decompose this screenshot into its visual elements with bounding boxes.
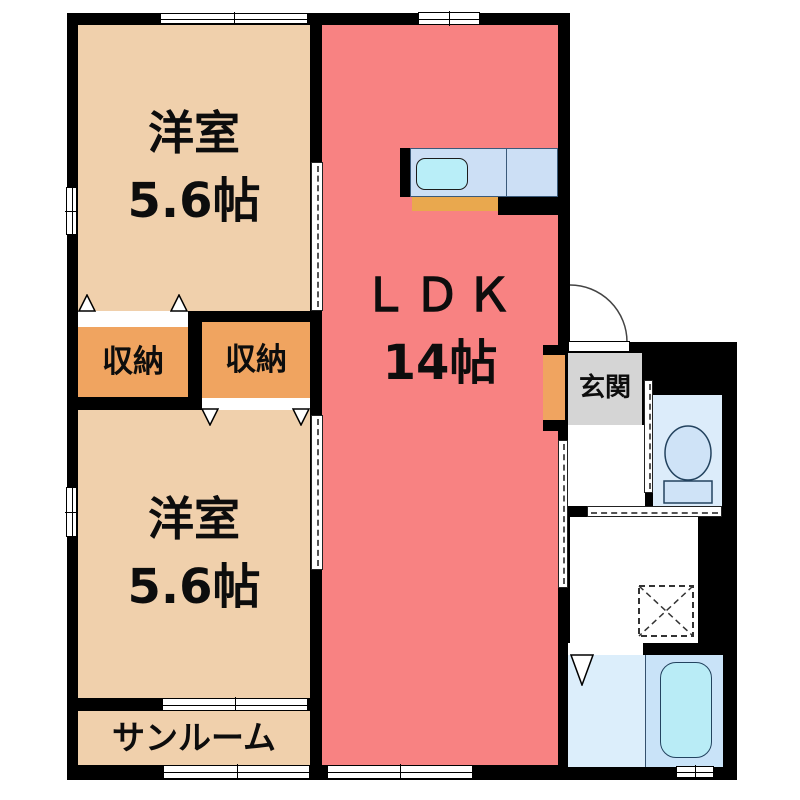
window-left-room1 bbox=[66, 187, 77, 235]
window-top-ldk bbox=[418, 12, 480, 25]
entrance-text: 玄関 bbox=[579, 370, 631, 408]
ldk-name: ＬＤＫ bbox=[362, 262, 518, 329]
entrance-label: 玄関 bbox=[568, 353, 642, 425]
room-top-label: 洋室 5.6帖 bbox=[78, 25, 310, 311]
ldk-size: 14帖 bbox=[383, 329, 498, 399]
closet-left-text: 収納 bbox=[102, 340, 164, 385]
window-top-room1 bbox=[160, 13, 308, 24]
door-washroom bbox=[587, 506, 722, 517]
ldk-label: ＬＤＫ 14帖 bbox=[322, 258, 558, 403]
door-wedge-icon bbox=[570, 654, 594, 686]
window-bottom-sunroom bbox=[163, 765, 310, 779]
closet-right-text: 収納 bbox=[225, 338, 287, 383]
door-room2-ldk bbox=[311, 415, 323, 570]
closet-left-door bbox=[78, 311, 188, 327]
shoebox-wall-bottom bbox=[543, 420, 570, 431]
kitchen-wall-stub bbox=[400, 148, 410, 197]
kitchen-counter bbox=[410, 148, 558, 197]
sunroom-text: サンルーム bbox=[112, 714, 276, 762]
floor-plan: 洋室 5.6帖 洋室 5.6帖 ＬＤＫ 14帖 収納 収納 サンルーム 玄関 bbox=[0, 0, 800, 800]
entrance-door-leaf bbox=[568, 341, 630, 352]
closet-left-label: 収納 bbox=[78, 327, 188, 397]
bathtub-icon bbox=[660, 662, 712, 758]
washing-machine-icon bbox=[637, 584, 695, 638]
window-bath bbox=[676, 766, 714, 778]
room-bottom-label: 洋室 5.6帖 bbox=[78, 410, 310, 698]
room-top-name: 洋室 bbox=[148, 100, 240, 167]
kitchen-sink-icon bbox=[416, 158, 468, 190]
toilet-icon bbox=[660, 424, 716, 504]
window-left-room2 bbox=[66, 487, 77, 537]
room-bottom-name: 洋室 bbox=[148, 486, 240, 553]
kitchen-counter-edge bbox=[412, 197, 498, 211]
window-room2-sunroom bbox=[162, 698, 308, 711]
kitchen-counter-divider bbox=[506, 149, 507, 196]
sunroom-label: サンルーム bbox=[78, 711, 310, 765]
door-ldk-hallway bbox=[558, 440, 568, 588]
room-top-size: 5.6帖 bbox=[127, 167, 260, 237]
door-toilet bbox=[644, 380, 653, 493]
closet-right-label: 収納 bbox=[202, 322, 310, 398]
room-bottom-size: 5.6帖 bbox=[127, 553, 260, 623]
kitchen-wall-seg bbox=[498, 197, 558, 215]
window-bottom-ldk bbox=[327, 765, 473, 779]
hallway bbox=[568, 425, 645, 506]
